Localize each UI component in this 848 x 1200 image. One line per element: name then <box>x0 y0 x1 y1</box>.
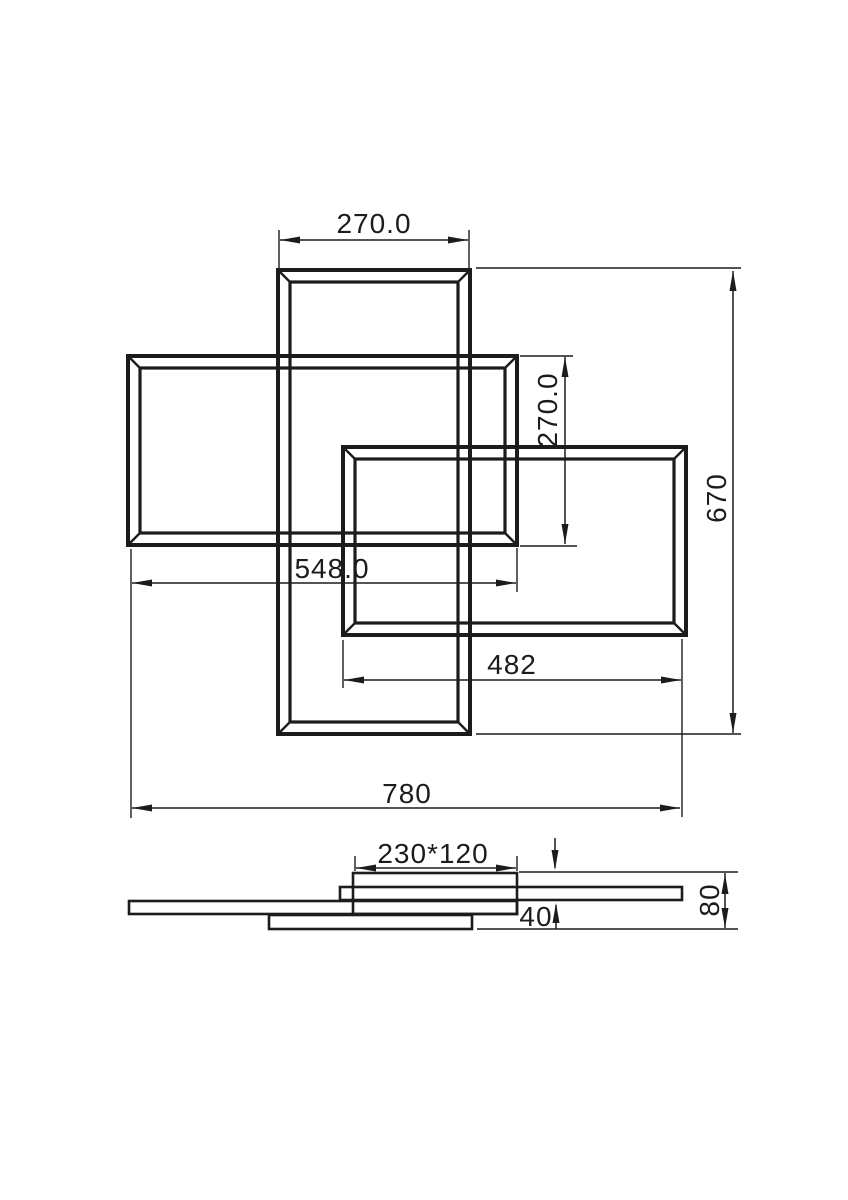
dim-right-frame-width: 482 <box>487 649 537 680</box>
dimension-lines <box>132 240 733 929</box>
canopy-profile <box>353 873 517 914</box>
left-frame-profile <box>129 901 517 914</box>
dim-overall-width: 780 <box>382 778 432 809</box>
drawing-sheet: 270.0 270.0 548.0 482 780 670 230*120 40… <box>0 0 848 1200</box>
right-frame-profile <box>340 887 682 900</box>
dim-left-frame-height: 270.0 <box>532 372 563 447</box>
dim-total-height: 80 <box>694 883 725 916</box>
dim-canopy-size: 230*120 <box>377 838 488 869</box>
side-view <box>129 873 682 929</box>
dim-center-frame-width: 270.0 <box>336 208 411 239</box>
dim-overall-height: 670 <box>701 473 732 523</box>
dimension-labels: 270.0 270.0 548.0 482 780 670 230*120 40… <box>294 208 732 932</box>
center-vertical-frame <box>278 270 470 734</box>
plan-view <box>128 270 686 734</box>
dim-body-height: 40 <box>519 901 552 932</box>
center-frame-profile <box>269 915 472 929</box>
dim-left-frame-width: 548.0 <box>294 553 369 584</box>
extension-lines <box>131 230 741 929</box>
technical-drawing: 270.0 270.0 548.0 482 780 670 230*120 40… <box>0 0 848 1200</box>
